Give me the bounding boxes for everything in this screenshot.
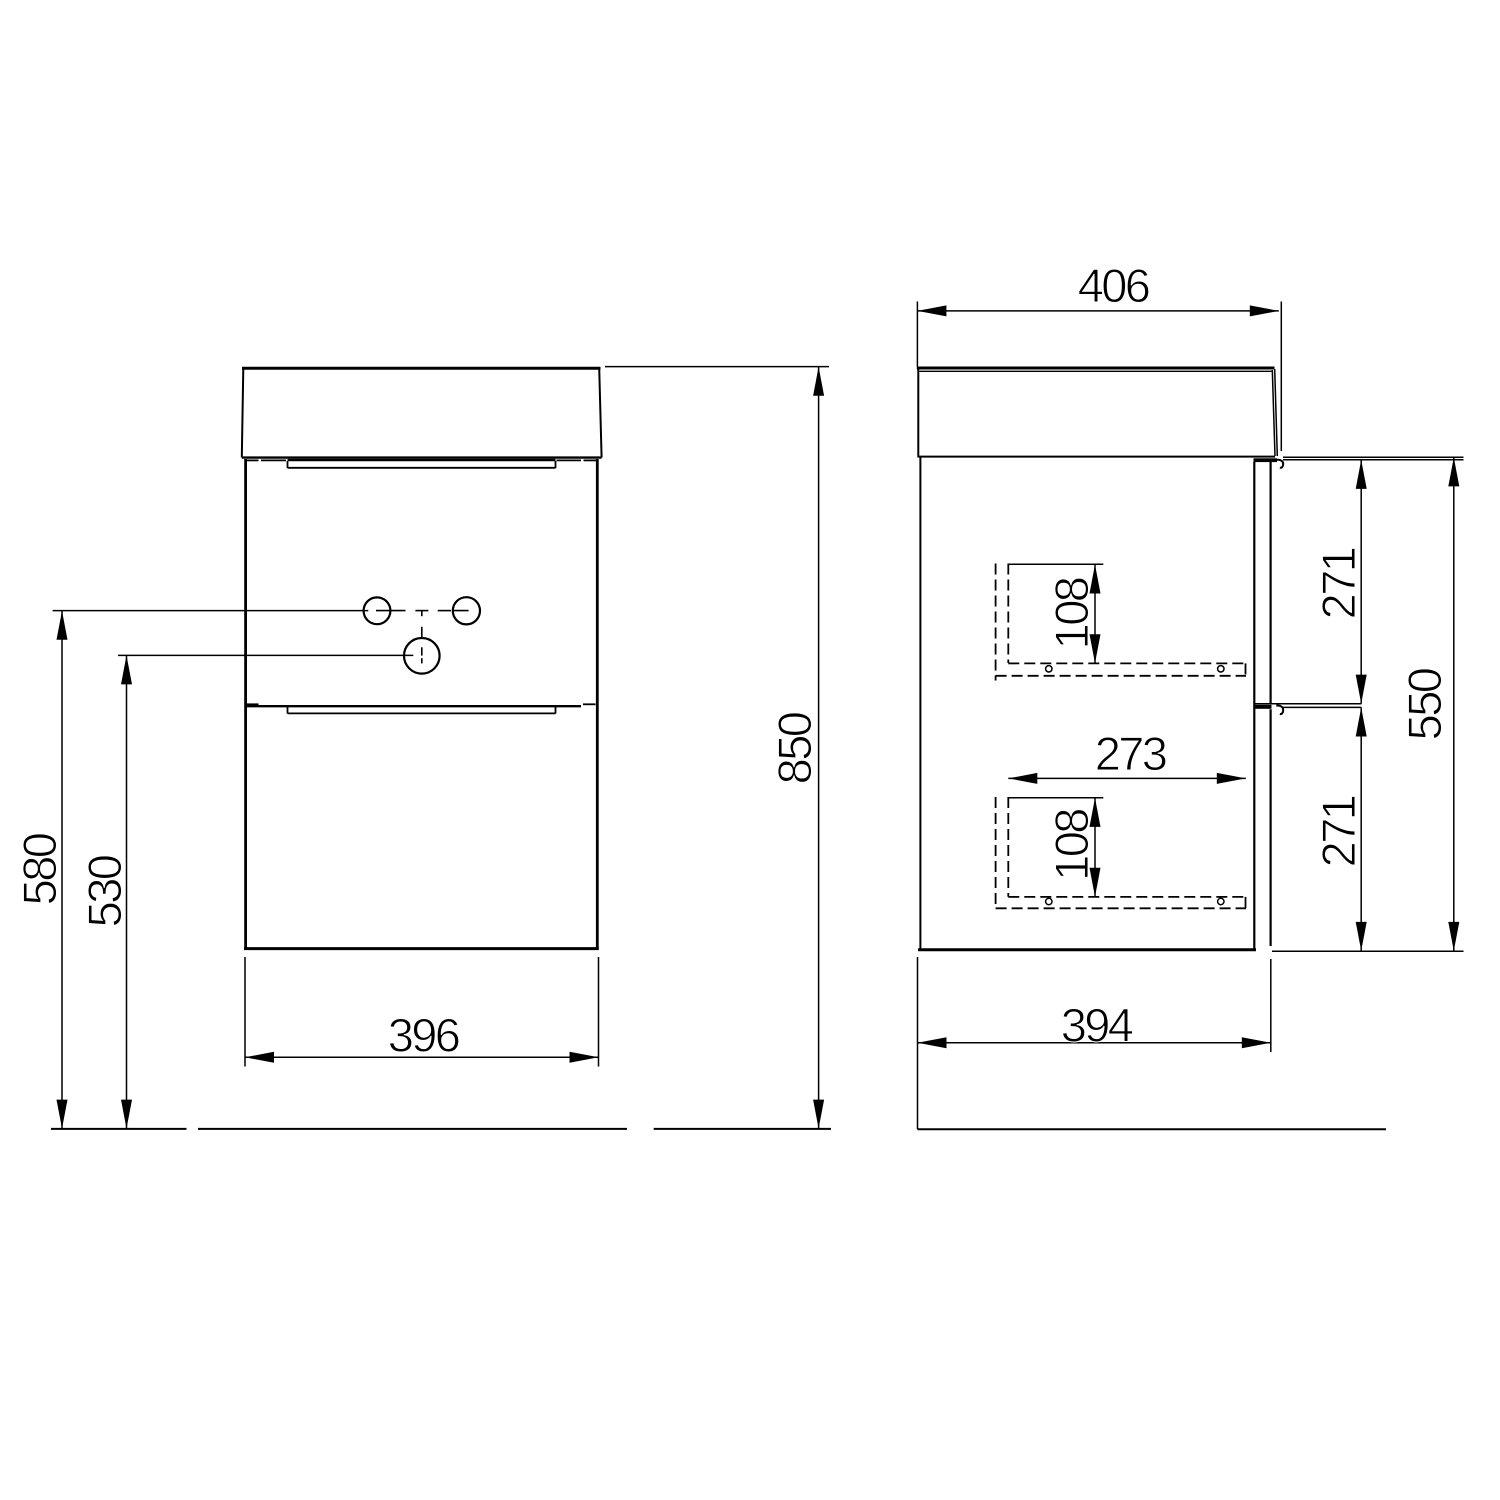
svg-text:394: 394 [1061,999,1133,1052]
svg-text:396: 396 [388,1009,460,1062]
svg-text:108: 108 [1045,809,1098,881]
svg-text:850: 850 [768,712,821,784]
svg-text:271: 271 [1312,796,1365,867]
svg-text:271: 271 [1312,548,1365,619]
svg-text:550: 550 [1398,668,1451,740]
svg-text:108: 108 [1045,577,1098,649]
svg-text:273: 273 [1095,727,1167,780]
svg-text:406: 406 [1078,259,1150,312]
svg-text:530: 530 [78,855,131,927]
svg-text:580: 580 [13,833,66,905]
